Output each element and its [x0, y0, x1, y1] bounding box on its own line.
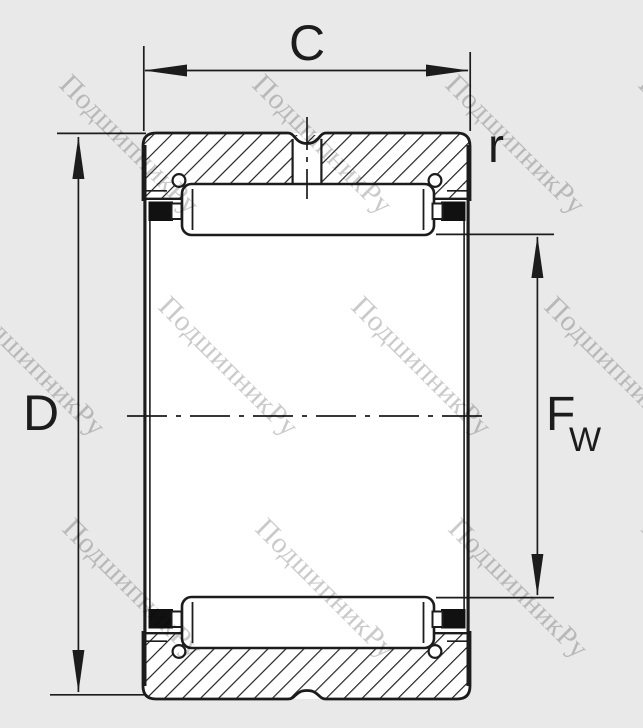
cage-rail-bottom-right — [429, 645, 442, 658]
dimension-label-C: C — [289, 15, 325, 71]
seal-bottom-right — [441, 609, 466, 629]
seal-top-right — [441, 202, 466, 222]
cage-rail-top-right — [429, 174, 442, 187]
bearing-cross-section-svg: C D F W r ПодшипникРу ПодшипникРу Подшип… — [0, 0, 643, 728]
needle-roller-top — [182, 184, 434, 235]
seal-lip-bottom-right — [433, 612, 443, 628]
bearing-drawing-canvas: C D F W r ПодшипникРу ПодшипникРу Подшип… — [0, 0, 643, 728]
dimension-label-F-subscript-W: W — [569, 421, 601, 459]
seal-lip-top-right — [433, 204, 443, 220]
